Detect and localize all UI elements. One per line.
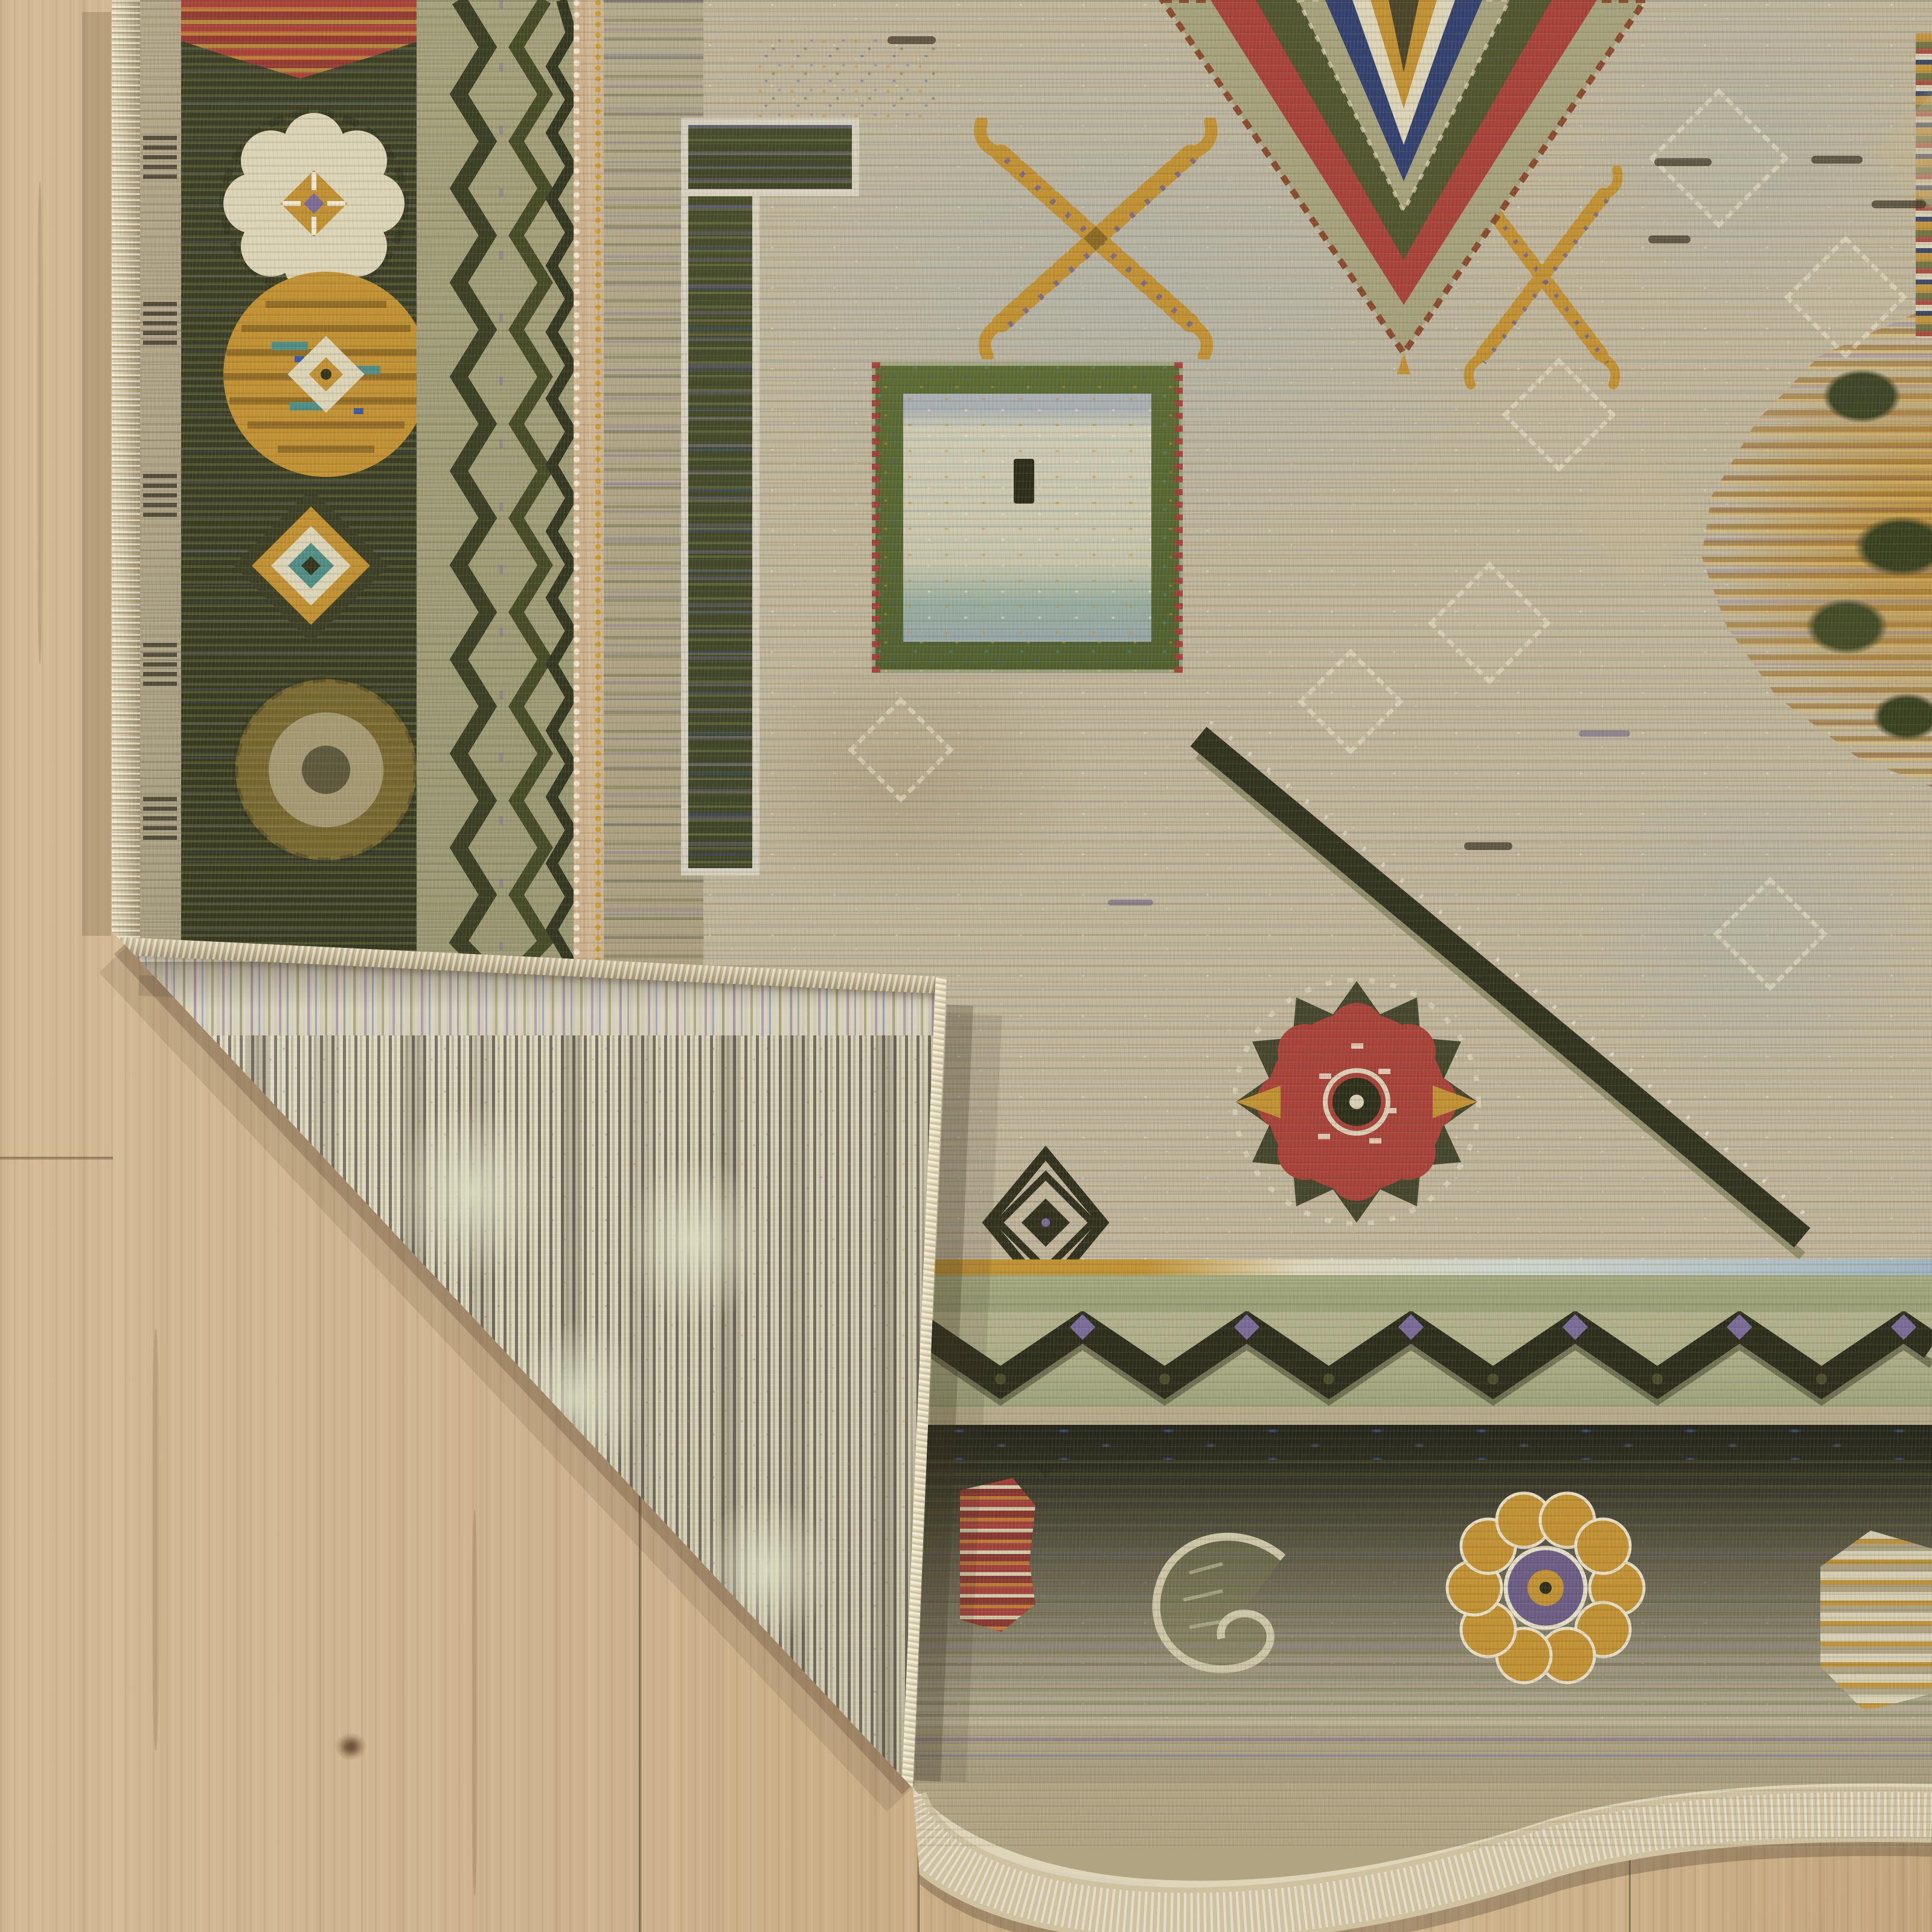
rug-product-photo [0,0,1932,1932]
backing-ghost-rosette [622,1156,767,1325]
backing-ghost-rosette [392,1102,549,1283]
